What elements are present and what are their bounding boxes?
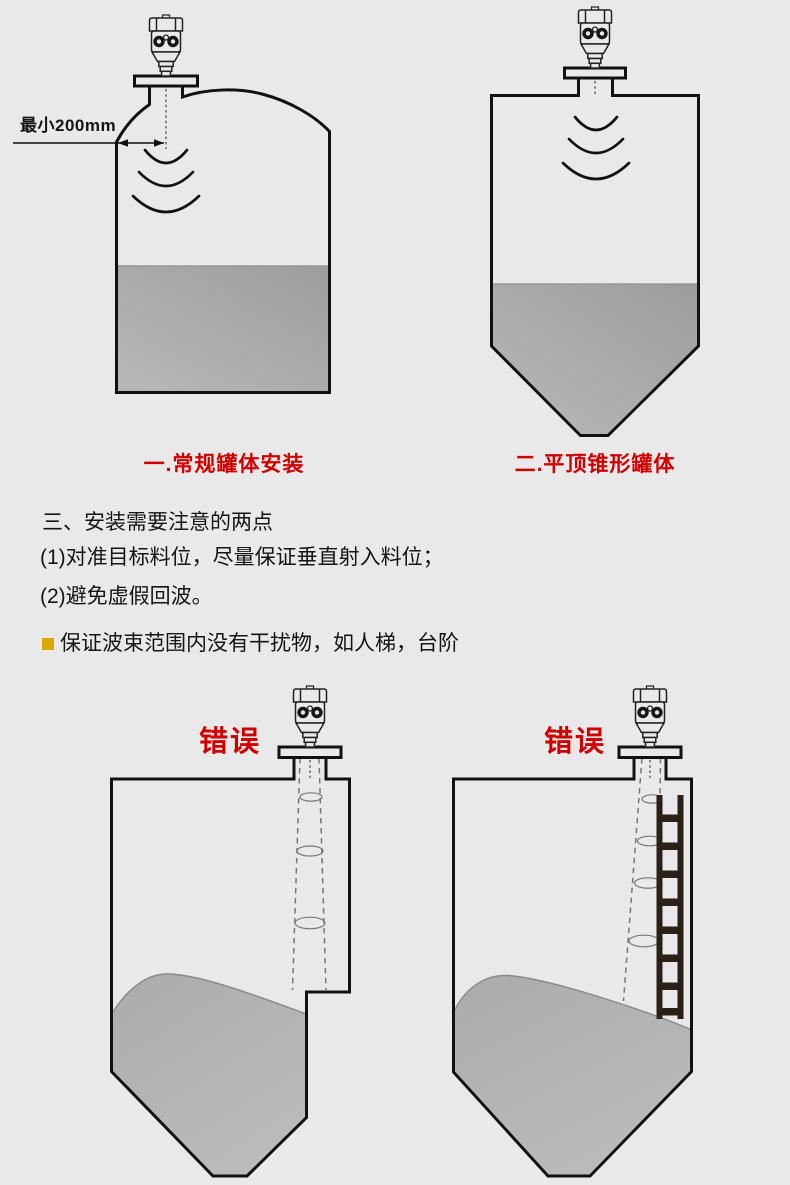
- note-text: 保证波束范围内没有干扰物，如人梯，台阶: [60, 632, 459, 656]
- error-label-left: 错误: [150, 726, 310, 759]
- min-distance-dimension: [13, 139, 164, 147]
- caption-normal-tank: 一.常规罐体安装: [116, 453, 332, 477]
- normal-tank-diagram: [13, 15, 330, 393]
- min-distance-label: 最小200mm: [20, 116, 116, 136]
- mounting-flange: [565, 68, 626, 78]
- ladder-icon: [657, 795, 684, 1019]
- signal-waves-icon: [133, 150, 199, 212]
- wrong-installation-step-diagram: [112, 686, 350, 1176]
- caption-cone-tank: 二.平顶锥形罐体: [488, 453, 702, 477]
- radar-sensor-icon: [579, 7, 612, 68]
- error-label-right: 错误: [495, 726, 655, 759]
- material-fill: [455, 975, 690, 1174]
- cone-tank-diagram: [492, 7, 699, 436]
- material-fill: [113, 974, 305, 1175]
- mounting-flange: [135, 76, 198, 86]
- installation-instructions-page: 最小200mm 一.常规罐体安装 二.平顶锥形罐体 三、安装需要注意的两点 (1…: [0, 0, 790, 1185]
- material-fill: [118, 266, 328, 391]
- instruction-point-1: (1)对准目标料位，尽量保证垂直射入料位；: [40, 546, 444, 570]
- beam-path: [624, 758, 663, 1010]
- signal-waves-icon: [563, 117, 629, 179]
- note-bullet-icon: [42, 638, 54, 650]
- radar-sensor-icon: [150, 15, 183, 76]
- section-heading: 三、安装需要注意的两点: [42, 511, 273, 535]
- note-row: 保证波束范围内没有干扰物，如人梯，台阶: [42, 632, 459, 656]
- wrong-installation-ladder-diagram: [454, 686, 692, 1176]
- material-fill: [493, 284, 697, 434]
- beam-path: [293, 758, 327, 990]
- instruction-point-2: (2)避免虚假回波。: [40, 585, 213, 609]
